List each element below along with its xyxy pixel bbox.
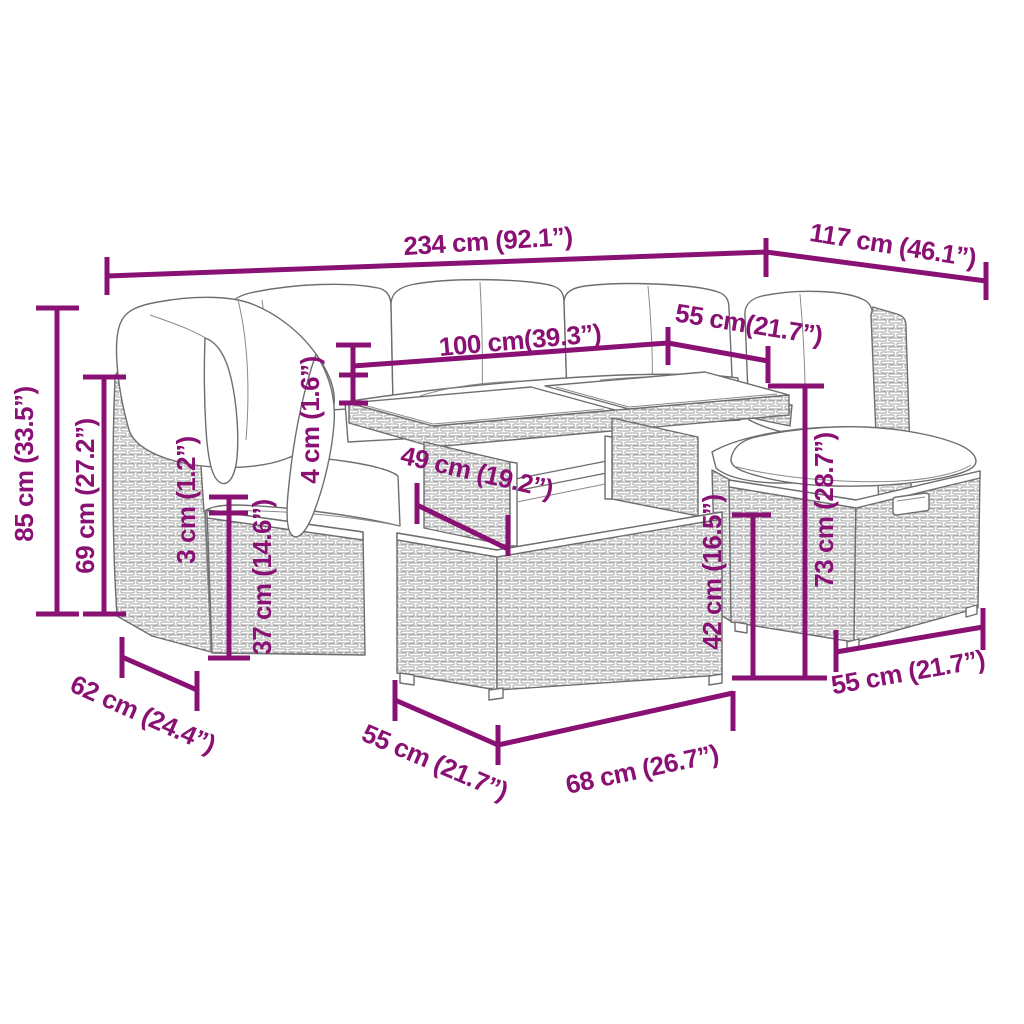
- ottoman-foot-left: [735, 622, 747, 633]
- ottoman-handle: [893, 493, 929, 515]
- dimension-label-table-base-length: 68 cm (26.7”): [563, 738, 721, 800]
- table-foot-left: [400, 673, 414, 685]
- table-column-right: [612, 418, 698, 516]
- dimension-label-total-depth-right: 117 cm (46.1”): [808, 217, 979, 273]
- dimension-module-depth: 62 cm (24.4”): [66, 637, 220, 759]
- dimension-table-base-length: 68 cm (26.7”): [498, 691, 733, 800]
- ottoman-cushion: [731, 427, 976, 486]
- dimension-label-total-width: 234 cm (92.1”): [403, 221, 574, 261]
- dimension-label-table-base-depth: 55 cm (21.7”): [358, 718, 513, 806]
- dimension-label-cushion-thickness: 3 cm (1.2”): [171, 436, 201, 563]
- dimension-label-back-height: 85 cm (33.5”): [9, 386, 39, 541]
- table-base-front: [397, 533, 497, 690]
- table-foot-front: [489, 688, 503, 700]
- dimension-line: [498, 693, 733, 745]
- dimension-label-stool-depth: 55 cm (21.7”): [829, 644, 987, 701]
- dimension-label-table-height: 73 cm (28.7”): [809, 432, 839, 587]
- product-dimension-diagram: 234 cm (92.1”)117 cm (46.1”)100 cm(39.3”…: [0, 0, 1024, 1024]
- dimension-total-depth-right: 117 cm (46.1”): [766, 217, 986, 300]
- dimension-label-back-height-inner: 69 cm (27.2”): [70, 418, 100, 573]
- dimension-label-tabletop-thickness: 4 cm (1.6”): [295, 356, 325, 483]
- dimension-line: [122, 657, 197, 690]
- ottoman: [729, 427, 980, 652]
- dimension-back-height: 85 cm (33.5”): [9, 308, 79, 614]
- diagram-canvas: 234 cm (92.1”)117 cm (46.1”)100 cm(39.3”…: [0, 0, 1024, 1024]
- dimension-label-seat-frame-height: 37 cm (14.6”): [247, 499, 277, 654]
- table-foot-right: [709, 674, 722, 685]
- dimension-label-stool-height: 42 cm (16.5”): [697, 494, 727, 649]
